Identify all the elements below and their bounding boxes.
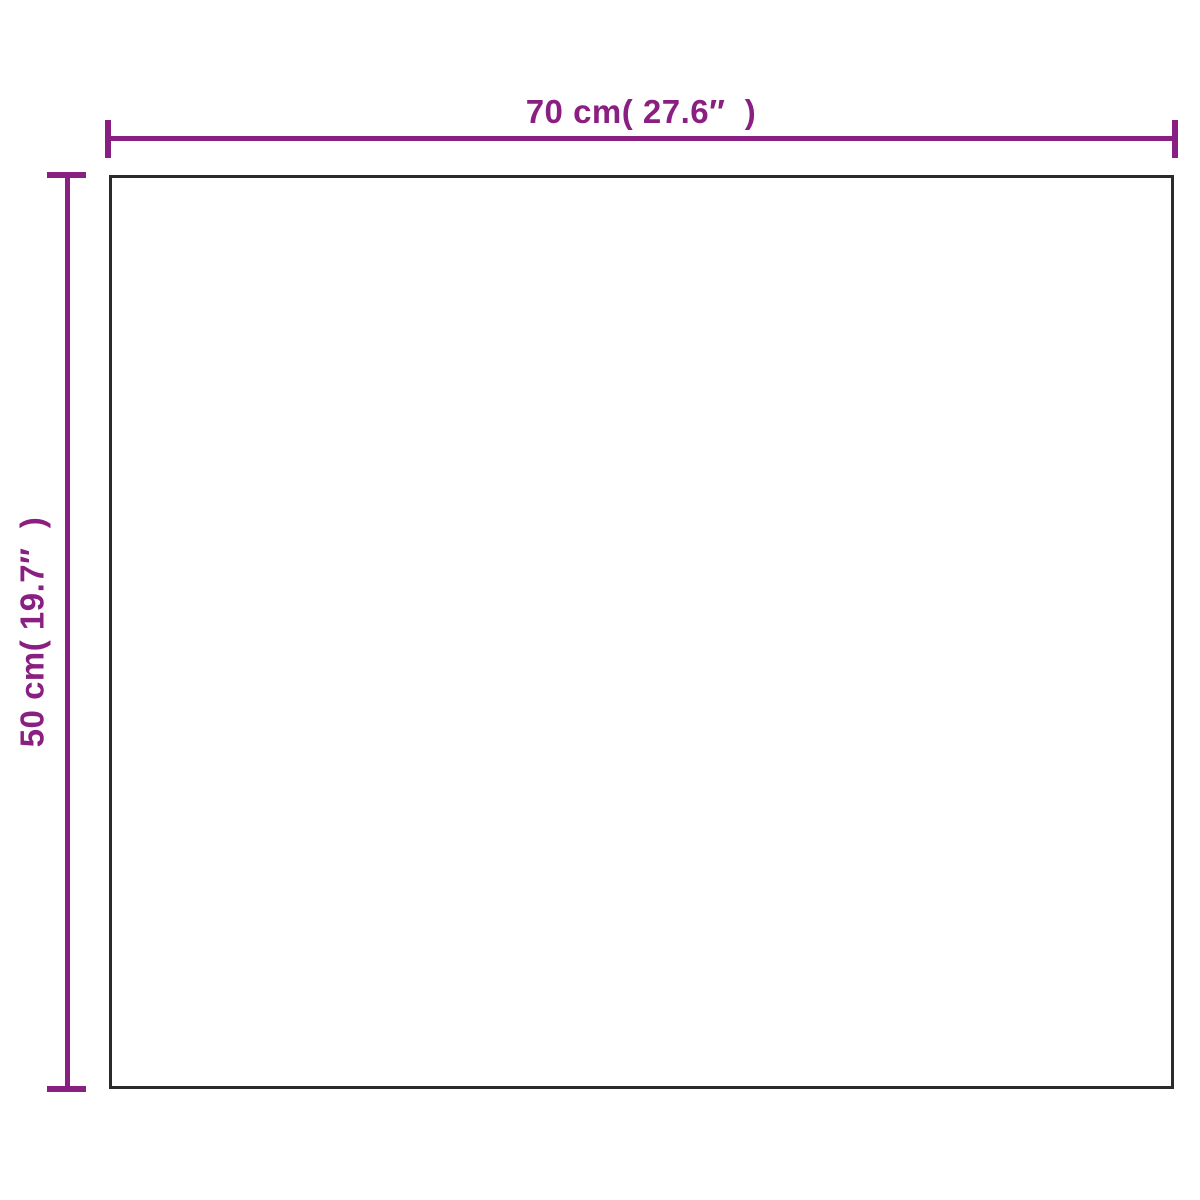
height-dimension-line <box>65 172 70 1092</box>
dimension-diagram: 70 cm( 27.6″ ) 50 cm( 19.7″ ) <box>0 0 1200 1200</box>
height-dimension-bottom-tick <box>47 1086 86 1092</box>
width-dimension-line <box>107 136 1177 141</box>
width-dimension-right-tick <box>1172 120 1178 158</box>
height-dimension-label: 50 cm( 19.7″ ) <box>16 517 49 748</box>
width-dimension-label: 70 cm( 27.6″ ) <box>341 95 941 128</box>
width-dimension-left-tick <box>105 120 111 158</box>
height-dimension-top-tick <box>47 172 86 178</box>
product-outline <box>109 175 1174 1089</box>
